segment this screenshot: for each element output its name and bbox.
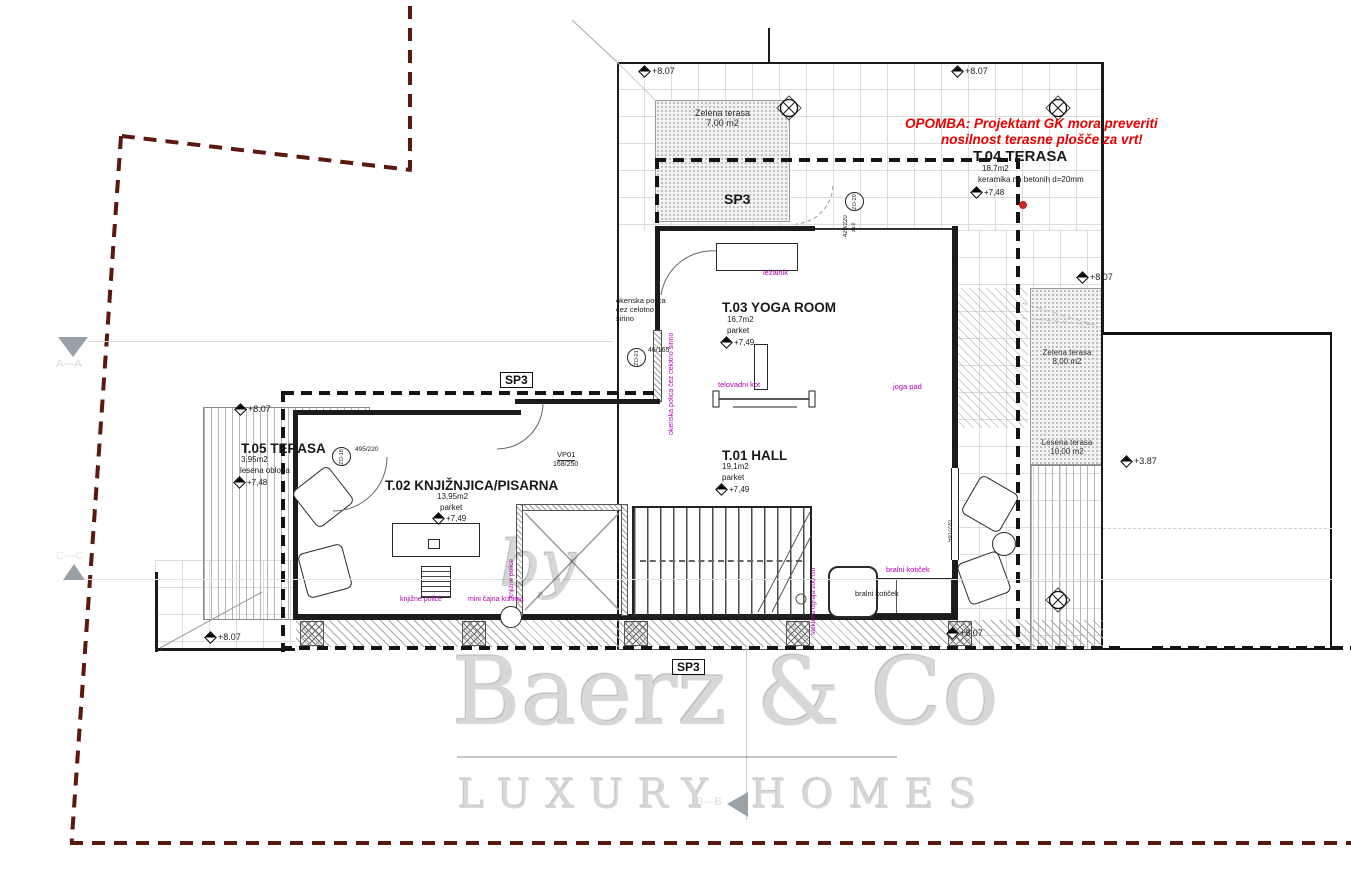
room-t03-elev: +7,49 <box>722 338 754 349</box>
okenska-note-vertical: okenska polica čez celotno širino <box>668 245 675 435</box>
sp3-label-mid: SP3 <box>500 372 533 388</box>
sp3-dash-left <box>281 391 285 652</box>
neighbour-building <box>1103 332 1332 650</box>
east-wall <box>952 226 958 620</box>
lounger-label: ležalnik <box>763 268 788 277</box>
room-t03-finish: parket <box>727 326 749 337</box>
red-dot <box>1019 201 1027 209</box>
benchmark-icon <box>720 337 733 350</box>
t05-corner-v <box>155 572 158 652</box>
sp3-dash-mid <box>283 391 658 395</box>
section-aa-label: A—A <box>56 358 82 370</box>
benchmark-icon <box>1120 455 1133 468</box>
room-t02-area: 13,95m2 <box>437 492 468 503</box>
elev-marker-387: +3.87 <box>1122 456 1157 466</box>
vp01-label: VP01 <box>557 450 575 461</box>
tea-kitchen-sink <box>500 606 522 628</box>
room-t01-title: T.01 HALL <box>722 448 787 463</box>
ograja-note-vertical: steklena ograja 100 cm <box>810 545 817 635</box>
elev-marker: +8.07 <box>640 66 675 76</box>
benchmark-icon <box>1076 271 1089 284</box>
lounger <box>716 243 798 271</box>
elev-marker: +8.07 <box>236 404 271 414</box>
room-t02-finish: parket <box>440 503 462 514</box>
room-t02-title: T.02 KNJIŽNJICA/PISARNA <box>385 478 558 493</box>
okenska-note: okenska polica čez celotno širino <box>616 296 666 323</box>
neighbour-dashed-line <box>1103 528 1332 529</box>
opomba-note-line2: nosilnost terasne plošče za vrt! <box>941 132 1143 147</box>
tag-zo18: ZO-18 <box>332 447 351 466</box>
room-t02-elev: +7,49 <box>434 514 466 525</box>
sp3-dash-upleft <box>655 158 659 230</box>
sp3-dash-top <box>655 158 1020 162</box>
wood-terrace-10-label: Lesena terasa 10,00 m2 <box>1032 438 1102 456</box>
room-t03-area: 16,7m2 <box>727 315 754 326</box>
door-591-220: 591/220 <box>948 512 954 542</box>
benchmark-icon <box>234 403 247 416</box>
terrace-table <box>992 532 1016 556</box>
yoga-top-wall <box>655 226 815 231</box>
shaft-right-wall <box>621 504 628 616</box>
boundary-bottom <box>70 841 1351 845</box>
corner-diagonal-1 <box>572 20 617 62</box>
terrace-name: Zelena terasa <box>660 108 785 118</box>
room-t04-area: 18,7m2 <box>982 164 1009 175</box>
watermark-brand: Baerz & Co <box>452 638 999 747</box>
green-terrace-8-label: Zelena terasa 8,00 m2 <box>1032 348 1102 366</box>
opomba-note-line1: OPOMBA: Projektant GK mora preveriti <box>905 116 1158 131</box>
vp01-size: 168/250 <box>553 461 578 468</box>
benchmark-icon <box>951 65 964 78</box>
post-1 <box>300 621 324 646</box>
elev-marker: +8.07 <box>953 66 988 76</box>
watermark-rule <box>457 756 897 758</box>
room-t05-elev: +7,48 <box>235 478 267 489</box>
boundary-top-v <box>408 6 412 170</box>
gym-corner-label: telovadni kot <box>718 380 760 389</box>
room-t04-title: T.04 TERASA <box>973 148 1067 165</box>
yoga-room-floor <box>658 231 954 404</box>
door-420-220-sub: za:0 <box>851 214 857 232</box>
room-t05-finish: lesena obloga <box>240 466 290 477</box>
section-cc-triangle <box>63 564 85 580</box>
reading-nook-label: bralni kotiček <box>855 589 899 598</box>
room-t05-title: T.05 TERASA <box>241 441 326 456</box>
window-46-165: 46/165 <box>648 347 669 354</box>
benchmark-icon <box>204 631 217 644</box>
benchmark-icon <box>638 65 651 78</box>
upper-mid-wall <box>515 399 660 404</box>
room-t01-elev: +7,49 <box>717 485 749 496</box>
elev-marker: +8.07 <box>1078 272 1113 282</box>
desk-chair <box>421 566 451 598</box>
terrace-left-edge <box>617 62 619 650</box>
terrace-top-edge <box>617 62 1104 64</box>
boundary-top-h <box>122 134 412 172</box>
boundary-left <box>70 136 123 842</box>
room-t04-finish: keramika na betonih d=20mm <box>978 175 1084 186</box>
section-cc-line <box>88 579 1332 580</box>
floor-plan-canvas: Zelena terasa 7,00 m2 SP3 OPOMBA: Projek… <box>0 0 1351 874</box>
watermark-tagline: LUXURY HOMES <box>458 772 992 818</box>
sp3-label-top: SP3 <box>724 191 750 207</box>
benchmark-icon <box>432 513 445 526</box>
terrace-area: 7,00 m2 <box>660 118 785 128</box>
section-cc-label: C—C <box>56 550 83 562</box>
stair-walkline <box>640 560 802 562</box>
elev-marker: +8.07 <box>206 632 241 642</box>
watermark-by: by <box>500 528 577 602</box>
benchmark-icon <box>715 484 728 497</box>
benchmark-icon <box>233 477 246 490</box>
elev-marker: +8.07 <box>948 628 983 638</box>
reading-nook-label-purple: bralni kotiček <box>886 565 930 574</box>
room-t03-title: T.03 YOGA ROOM <box>722 300 836 315</box>
sp3-dash-bottom-right <box>1152 646 1351 650</box>
room-t01-finish: parket <box>722 473 744 484</box>
book-shelf-label: knjižne police <box>400 596 442 603</box>
tag-zo20: ZO-20 <box>845 192 864 211</box>
door-420-220: 420/220 <box>843 211 849 237</box>
shaft-top-wall <box>516 504 628 511</box>
room-t01-area: 19,1m2 <box>722 462 749 473</box>
green-terrace-7-label: Zelena terasa 7,00 m2 <box>660 108 785 128</box>
library-top-wall <box>293 410 521 415</box>
roof-stub-line <box>768 28 770 62</box>
room-t04-elev: +7,48 <box>972 188 1004 199</box>
yoga-pad-label: joga pad <box>893 382 922 391</box>
benchmark-icon <box>970 187 983 200</box>
yoga-top-glass <box>815 228 952 230</box>
t05-corner-h <box>155 648 295 651</box>
section-aa-triangle <box>58 337 88 357</box>
window-495-220: 495/220 <box>355 446 379 453</box>
room-t05-area: 3,95m2 <box>241 455 268 466</box>
desk-tray <box>428 539 440 549</box>
section-aa-line <box>88 341 613 342</box>
tag-zo21: ZO-21 <box>627 348 646 367</box>
sp3-dash-right <box>1016 158 1020 650</box>
